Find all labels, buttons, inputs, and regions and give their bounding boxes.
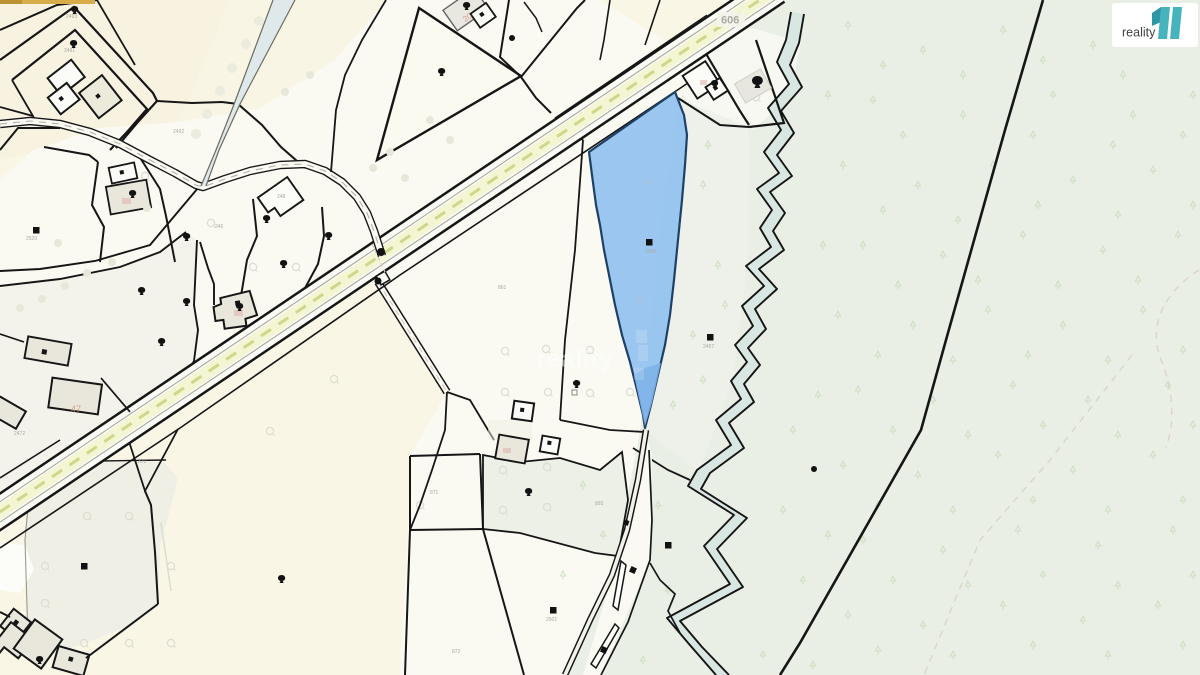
- svg-text:893: 893: [595, 501, 604, 507]
- svg-text:861: 861: [498, 285, 507, 291]
- svg-text:2495: 2495: [645, 249, 656, 255]
- svg-text:reality: reality: [536, 346, 614, 373]
- svg-text:248: 248: [277, 194, 286, 200]
- svg-text:reality: reality: [1122, 26, 1156, 40]
- svg-text:47: 47: [71, 404, 81, 414]
- svg-text:2492: 2492: [173, 129, 184, 135]
- svg-text:606: 606: [721, 15, 739, 27]
- svg-text:2520: 2520: [26, 236, 37, 242]
- svg-text:2491: 2491: [64, 48, 75, 54]
- svg-text:871: 871: [430, 490, 439, 496]
- svg-text:2472: 2472: [14, 431, 25, 437]
- svg-text:370: 370: [138, 459, 147, 465]
- svg-text:2497: 2497: [703, 344, 714, 350]
- svg-text:2501: 2501: [546, 617, 557, 623]
- svg-text:872: 872: [452, 649, 461, 655]
- svg-text:2493: 2493: [66, 14, 77, 20]
- svg-text:246: 246: [215, 224, 224, 230]
